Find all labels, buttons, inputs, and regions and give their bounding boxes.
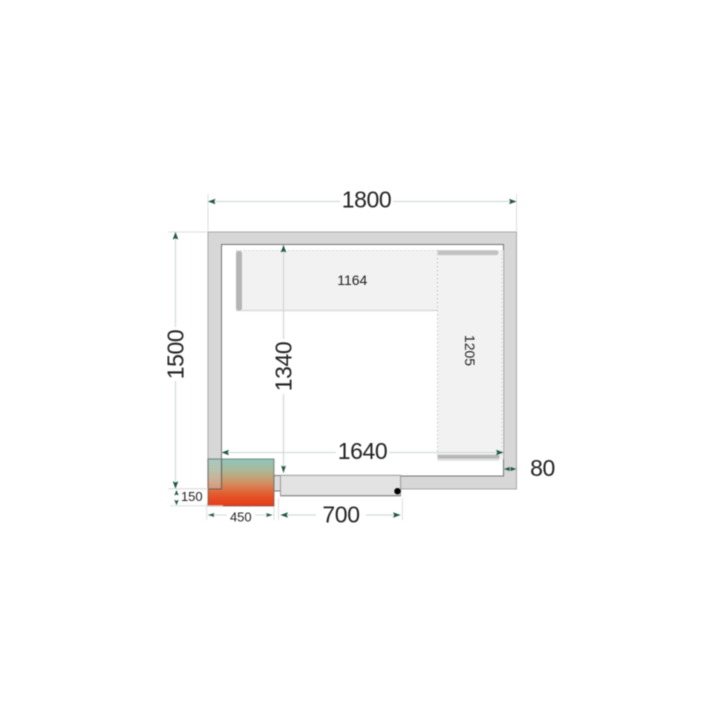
svg-text:1164: 1164 (337, 272, 367, 288)
svg-text:700: 700 (322, 502, 359, 528)
svg-text:1640: 1640 (338, 438, 388, 464)
svg-text:1205: 1205 (462, 335, 478, 366)
svg-text:150: 150 (181, 489, 203, 504)
svg-text:80: 80 (530, 455, 555, 481)
svg-text:1800: 1800 (342, 187, 392, 213)
svg-text:450: 450 (230, 509, 252, 524)
svg-text:1500: 1500 (163, 330, 189, 380)
svg-text:1340: 1340 (271, 342, 297, 392)
